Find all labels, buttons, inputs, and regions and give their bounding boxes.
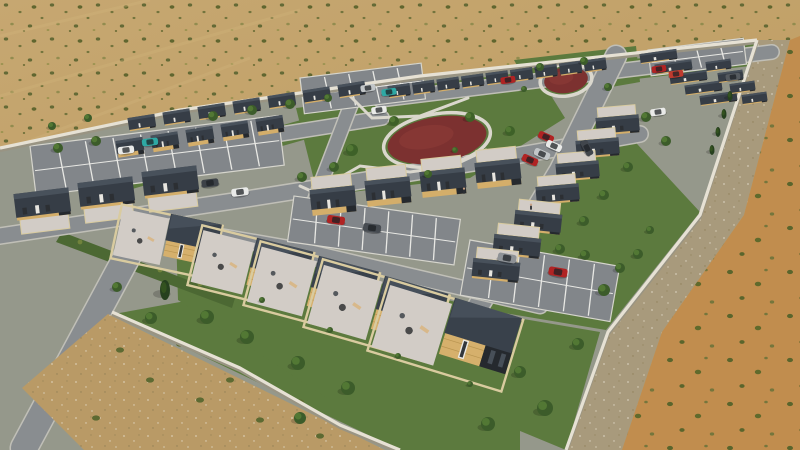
- house-window: [500, 172, 504, 180]
- tree-highlight: [599, 285, 606, 292]
- tree-highlight: [506, 127, 512, 133]
- grass-tuft: [78, 240, 83, 245]
- tree-highlight: [624, 163, 630, 169]
- house-window: [478, 270, 482, 275]
- house-door: [669, 68, 672, 71]
- house-window: [335, 199, 339, 207]
- tree-highlight: [466, 113, 472, 119]
- car-cabin: [672, 71, 679, 77]
- tree-highlight: [54, 144, 60, 150]
- tree-highlight: [662, 137, 668, 143]
- tree-highlight: [634, 250, 640, 256]
- house: [363, 164, 412, 207]
- tree-highlight: [209, 112, 215, 118]
- dirt-shrub: [196, 397, 204, 402]
- person: [463, 188, 465, 194]
- tree-highlight: [201, 311, 209, 319]
- house: [13, 187, 73, 234]
- house-window: [600, 149, 604, 154]
- viewport: Aerial 3D architectural rendering of a w…: [0, 0, 800, 450]
- person-head: [463, 188, 465, 190]
- house-window: [45, 205, 50, 212]
- dirt-shrub: [226, 377, 234, 382]
- tree-highlight: [390, 117, 396, 123]
- house-window: [372, 192, 376, 200]
- house-window: [445, 181, 449, 189]
- tree-highlight: [515, 367, 522, 374]
- person-body: [463, 190, 465, 194]
- house-window: [539, 224, 543, 229]
- tree-highlight: [573, 339, 580, 346]
- tree-highlight: [259, 297, 262, 300]
- tree-highlight: [616, 264, 622, 270]
- tree-highlight: [581, 58, 585, 62]
- conifer-highlight: [161, 282, 167, 293]
- tree-highlight: [521, 86, 524, 89]
- car-cabin: [206, 180, 214, 187]
- tree-highlight: [538, 401, 547, 410]
- house-window: [482, 174, 486, 182]
- house-window: [542, 196, 546, 201]
- tree-highlight: [537, 64, 541, 68]
- house-window: [497, 272, 501, 277]
- car-cabin: [332, 217, 341, 224]
- tree-highlight: [248, 106, 254, 112]
- house-window: [317, 201, 321, 209]
- tree-highlight: [113, 283, 119, 289]
- house-window: [86, 196, 91, 203]
- house: [473, 146, 522, 189]
- house-door: [684, 78, 687, 81]
- tree-highlight: [330, 163, 336, 169]
- dirt-shrub: [256, 417, 264, 422]
- house-window: [560, 195, 564, 200]
- house-window: [580, 172, 584, 177]
- tree-highlight: [295, 413, 302, 420]
- car-cabin: [656, 66, 663, 72]
- tree-highlight: [642, 113, 648, 119]
- dirt-shrub: [316, 433, 324, 438]
- house-door: [489, 270, 493, 276]
- tree-highlight: [347, 145, 354, 152]
- conifer-highlight: [728, 92, 731, 98]
- house-window: [173, 183, 178, 190]
- tree-highlight: [581, 251, 587, 257]
- tree-highlight: [556, 245, 562, 251]
- person-head: [530, 204, 532, 206]
- dirt-shrub: [92, 415, 100, 420]
- house-window: [518, 248, 522, 253]
- tree-highlight: [580, 217, 586, 223]
- house: [535, 173, 580, 204]
- car-cabin: [375, 107, 382, 113]
- car-cabin: [364, 85, 371, 91]
- conifer-highlight: [710, 146, 713, 152]
- car-cabin: [146, 139, 154, 145]
- dirt-shrub: [146, 377, 154, 382]
- car-cabin: [122, 147, 130, 153]
- tree-highlight: [395, 353, 398, 356]
- tree-highlight: [647, 227, 651, 231]
- house-window: [22, 207, 27, 214]
- tree-highlight: [146, 313, 153, 320]
- house-door: [654, 57, 657, 60]
- tree-highlight: [342, 382, 350, 390]
- tree-highlight: [452, 147, 455, 150]
- rendered-scene: [0, 0, 800, 450]
- house-window: [390, 190, 394, 198]
- tree-highlight: [241, 331, 249, 339]
- house-door: [699, 89, 702, 92]
- tree-highlight: [467, 381, 470, 384]
- house-window: [109, 194, 114, 201]
- dirt-shrub: [116, 347, 124, 352]
- tree-highlight: [49, 123, 53, 127]
- house-window: [620, 126, 624, 131]
- house-window: [427, 183, 431, 191]
- tree-highlight: [325, 95, 329, 99]
- conifer-highlight: [716, 128, 719, 134]
- car-cabin: [729, 74, 736, 80]
- house-window: [150, 185, 155, 192]
- house: [471, 247, 521, 283]
- house-door: [714, 99, 717, 102]
- car-cabin: [654, 109, 661, 115]
- person-body: [530, 206, 532, 210]
- tree-highlight: [92, 137, 98, 143]
- tree-highlight: [298, 173, 304, 179]
- car-cabin: [504, 77, 511, 83]
- person: [530, 204, 532, 210]
- tree-highlight: [85, 115, 89, 119]
- tree-highlight: [482, 418, 490, 426]
- car-cabin: [385, 89, 392, 95]
- house-door: [552, 195, 555, 201]
- house: [141, 165, 201, 212]
- tree-highlight: [425, 171, 429, 175]
- gravel-patio: [113, 209, 169, 265]
- tree-highlight: [605, 84, 609, 88]
- tree-highlight: [292, 357, 300, 365]
- car-cabin: [236, 189, 244, 196]
- tree-highlight: [286, 100, 292, 106]
- conifer-highlight: [722, 110, 725, 116]
- tree-highlight: [600, 191, 606, 197]
- tree-highlight: [327, 327, 330, 330]
- house: [308, 173, 357, 216]
- car-cabin: [368, 224, 377, 231]
